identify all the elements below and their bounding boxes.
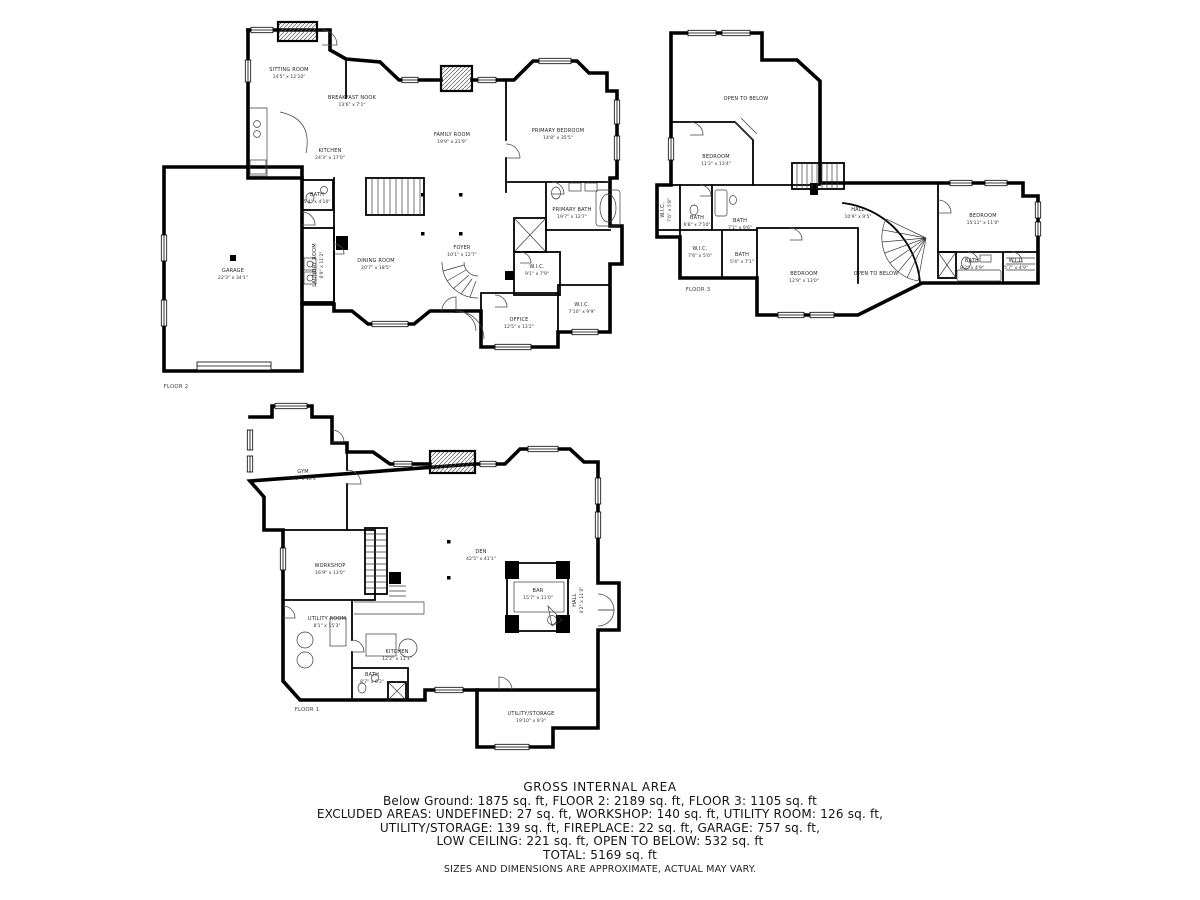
room-label-utility-room: UTILITY ROOM8'1" x 15'3" (308, 616, 346, 629)
room-label-wic-2: W.I.C.7'10" x 9'9" (568, 302, 595, 315)
room-label-kitchen: KITCHEN12'2" x 11'1" (382, 649, 412, 662)
room-label-wic-left: W.I.C.7'6" x 5'8" (660, 198, 673, 222)
room-label-bath: BATH8'7" x 6'2" (360, 672, 384, 685)
room-dims-label: 14'5" x 12'10" (273, 74, 306, 80)
room-label-bath-1: BATH6'8" x 7'10" (683, 215, 710, 228)
summary-disclaimer: SIZES AND DIMENSIONS ARE APPROXIMATE, AC… (0, 863, 1200, 876)
room-name-label: BATH (690, 215, 704, 221)
room-dims-label: 15'7" x 11'0" (523, 595, 553, 601)
room-dims-label: 22'3" x 34'1" (218, 275, 248, 281)
room-label-laundry-room: LAUNDRY ROOM6'9" x 11'2" (312, 243, 325, 286)
room-name-label: FAMILY ROOM (434, 132, 470, 138)
room-name-label: HALL (572, 593, 578, 607)
room-name-label: BATH (965, 258, 979, 264)
room-dims-label: 8'1" x 15'3" (313, 623, 340, 629)
room-label-primary-bedroom: PRIMARY BEDROOM14'8" x 35'5" (532, 128, 585, 141)
fireplace-chimney (441, 66, 472, 91)
room-dims-label: 12'2" x 11'1" (382, 656, 412, 662)
room-label-primary-bath: PRIMARY BATH19'7" x 12'7" (552, 207, 591, 220)
room-label-family-room: FAMILY ROOM19'9" x 21'9" (434, 132, 470, 145)
summary-title: GROSS INTERNAL AREA (0, 781, 1200, 795)
room-label-office: OFFICE12'5" x 13'2" (504, 317, 534, 330)
room-label-wil: W.I.L.5'7" x 4'9" (1004, 258, 1028, 271)
room-dims-label: 12'9" x 13'0" (789, 278, 819, 284)
room-name-label: KITCHEN (385, 649, 408, 655)
room-label-dining-room: DINING ROOM20'7" x 18'5" (357, 258, 395, 271)
room-dims-label: 19'10" x 9'3" (516, 718, 546, 724)
room-name-label: BREAKFAST NOOK (328, 95, 377, 101)
room-name-label: OPEN TO BELOW (854, 271, 899, 277)
room-name-label: GARAGE (222, 268, 244, 274)
room-label-open-to-below-lower: OPEN TO BELOW (854, 271, 899, 277)
area-summary: GROSS INTERNAL AREA Below Ground: 1875 s… (0, 781, 1200, 876)
room-dims-label: 7'10" x 9'9" (568, 309, 595, 315)
room-name-label: WORKSHOP (314, 563, 345, 569)
room-name-label: BEDROOM (702, 154, 730, 160)
room-dims-label: 15'11" x 11'0" (967, 220, 1000, 226)
room-name-label: FOYER (453, 245, 471, 251)
fireplace-chimney (430, 451, 475, 473)
room-name-label: W.I.C. (660, 202, 666, 218)
room-label-bedroom-3: BEDROOM15'11" x 11'0" (967, 213, 1000, 226)
room-dims-label: 42'5" x 41'1" (466, 556, 496, 562)
room-dims-label: 16'9" x 13'0" (315, 570, 345, 576)
summary-line-3: UTILITY/STORAGE: 139 sq. ft, FIREPLACE: … (0, 822, 1200, 836)
room-label-wic-mid: W.I.C.7'6" x 5'0" (688, 246, 712, 259)
floor1-caption: FLOOR 1 (295, 707, 320, 713)
room-dims-label: 19'7" x 12'7" (557, 214, 587, 220)
room-name-label: DINING ROOM (357, 258, 395, 264)
floor1-labels: GYM17'8" x 16'4" WORKSHOP16'9" x 13'0" U… (288, 469, 585, 724)
room-name-label: SITTING ROOM (269, 67, 308, 73)
room-name-label: BEDROOM (969, 213, 997, 219)
room-name-label: LAUNDRY ROOM (312, 243, 318, 286)
room-dims-label: 7'6" x 5'0" (688, 253, 712, 259)
room-dims-label: 17'8" x 16'4" (288, 476, 318, 482)
floorplan-page: SITTING ROOM14'5" x 12'10" BREAKFAST NOO… (0, 0, 1200, 900)
room-name-label: BATH (365, 672, 379, 678)
room-dims-label: 12'5" x 13'2" (504, 324, 534, 330)
room-dims-label: 20'7" x 18'5" (361, 265, 391, 271)
room-dims-label: 10'1" x 12'7" (447, 252, 477, 258)
room-label-garage: GARAGE22'3" x 34'1" (218, 268, 248, 281)
room-name-label: UTILITY/STORAGE (507, 711, 554, 717)
room-dims-label: 4'2" x 11'0" (579, 586, 585, 613)
room-name-label: W.I.C. (529, 264, 545, 270)
room-name-label: UTILITY ROOM (308, 616, 346, 622)
room-label-sitting-room: SITTING ROOM14'5" x 12'10" (269, 67, 308, 80)
room-name-label: OFFICE (509, 317, 528, 323)
room-name-label: KITCHEN (318, 148, 341, 154)
room-dims-label: 13'6" x 7'1" (338, 102, 365, 108)
room-dims-label: 8'7" x 6'2" (360, 679, 384, 685)
room-label-foyer: FOYER10'1" x 12'7" (447, 245, 477, 258)
room-dims-label: 19'9" x 21'9" (437, 139, 467, 145)
room-dims-label: 7'1" x 9'6" (728, 225, 752, 231)
room-label-hall: HALL4'2" x 11'0" (572, 586, 585, 613)
summary-line-4: LOW CEILING: 221 sq. ft, OPEN TO BELOW: … (0, 835, 1200, 849)
room-dims-label: 11'2" x 13'4" (701, 161, 731, 167)
room-name-label: HALL (851, 207, 865, 213)
floor1-plan: GYM17'8" x 16'4" WORKSHOP16'9" x 13'0" U… (235, 395, 655, 755)
floor3-caption: FLOOR 3 (686, 287, 711, 293)
room-dims-label: 9'1" x 7'9" (525, 271, 549, 277)
room-name-label: GYM (297, 469, 309, 475)
room-dims-label: 5'4" x 4'10" (303, 199, 330, 205)
room-dims-label: 8'2" x 4'9" (960, 265, 984, 271)
room-name-label: W.I.C. (692, 246, 708, 252)
summary-line-2: EXCLUDED AREAS: UNDEFINED: 27 sq. ft, WO… (0, 808, 1200, 822)
room-label-breakfast-nook: BREAKFAST NOOK13'6" x 7'1" (328, 95, 377, 108)
room-dims-label: 14'8" x 35'5" (543, 135, 573, 141)
room-dims-label: 10'9" x 9'5" (844, 214, 871, 220)
room-dims-label: 5'4" x 7'1" (730, 259, 754, 265)
room-dims-label: 6'8" x 7'10" (683, 222, 710, 228)
fireplace-chimney (278, 22, 317, 41)
floor3-plan: OPEN TO BELOW BEDROOM11'2" x 13'4" W.I.C… (645, 20, 1055, 335)
room-dims-label: 6'9" x 11'2" (319, 251, 325, 278)
summary-total: TOTAL: 5169 sq. ft (0, 849, 1200, 863)
room-dims-label: 24'3" x 17'0" (315, 155, 345, 161)
room-label-workshop: WORKSHOP16'9" x 13'0" (314, 563, 345, 576)
room-name-label: DEN (475, 549, 486, 555)
room-label-open-to-below-upper: OPEN TO BELOW (724, 96, 769, 102)
room-dims-label: 7'6" x 5'8" (667, 198, 673, 222)
floor2-labels: SITTING ROOM14'5" x 12'10" BREAKFAST NOO… (164, 67, 596, 390)
floor2-walls (164, 22, 622, 371)
floor1-walls (250, 406, 619, 747)
floor2-plan: SITTING ROOM14'5" x 12'10" BREAKFAST NOO… (150, 12, 680, 402)
room-name-label: PRIMARY BEDROOM (532, 128, 585, 134)
room-name-label: OPEN TO BELOW (724, 96, 769, 102)
summary-line-1: Below Ground: 1875 sq. ft, FLOOR 2: 2189… (0, 795, 1200, 809)
room-label-utility-storage: UTILITY/STORAGE19'10" x 9'3" (507, 711, 554, 724)
room-name-label: BATH (733, 218, 747, 224)
room-label-bedroom-2: BEDROOM12'9" x 13'0" (789, 271, 819, 284)
room-label-bar: BAR15'7" x 11'0" (523, 588, 553, 601)
room-name-label: BATH (735, 252, 749, 258)
room-name-label: W.I.C. (574, 302, 590, 308)
room-label-bath-3: BATH5'4" x 7'1" (730, 252, 754, 265)
floor2-windows (161, 27, 619, 349)
room-name-label: W.I.L. (1009, 258, 1024, 264)
room-label-wic-1: W.I.C.9'1" x 7'9" (525, 264, 549, 277)
floor3-walls (657, 33, 1038, 315)
room-label-bath-4: BATH8'2" x 4'9" (960, 258, 984, 271)
floor2-caption: FLOOR 2 (164, 384, 189, 390)
room-label-den: DEN42'5" x 41'1" (466, 549, 496, 562)
room-name-label: BATH (310, 192, 324, 198)
room-label-bath-2: BATH7'1" x 9'6" (728, 218, 752, 231)
room-name-label: PRIMARY BATH (552, 207, 591, 213)
room-dims-label: 5'7" x 4'9" (1004, 265, 1028, 271)
room-name-label: BEDROOM (790, 271, 818, 277)
room-label-bedroom-1: BEDROOM11'2" x 13'4" (701, 154, 731, 167)
room-name-label: BAR (533, 588, 544, 594)
room-label-kitchen: KITCHEN24'3" x 17'0" (315, 148, 345, 161)
